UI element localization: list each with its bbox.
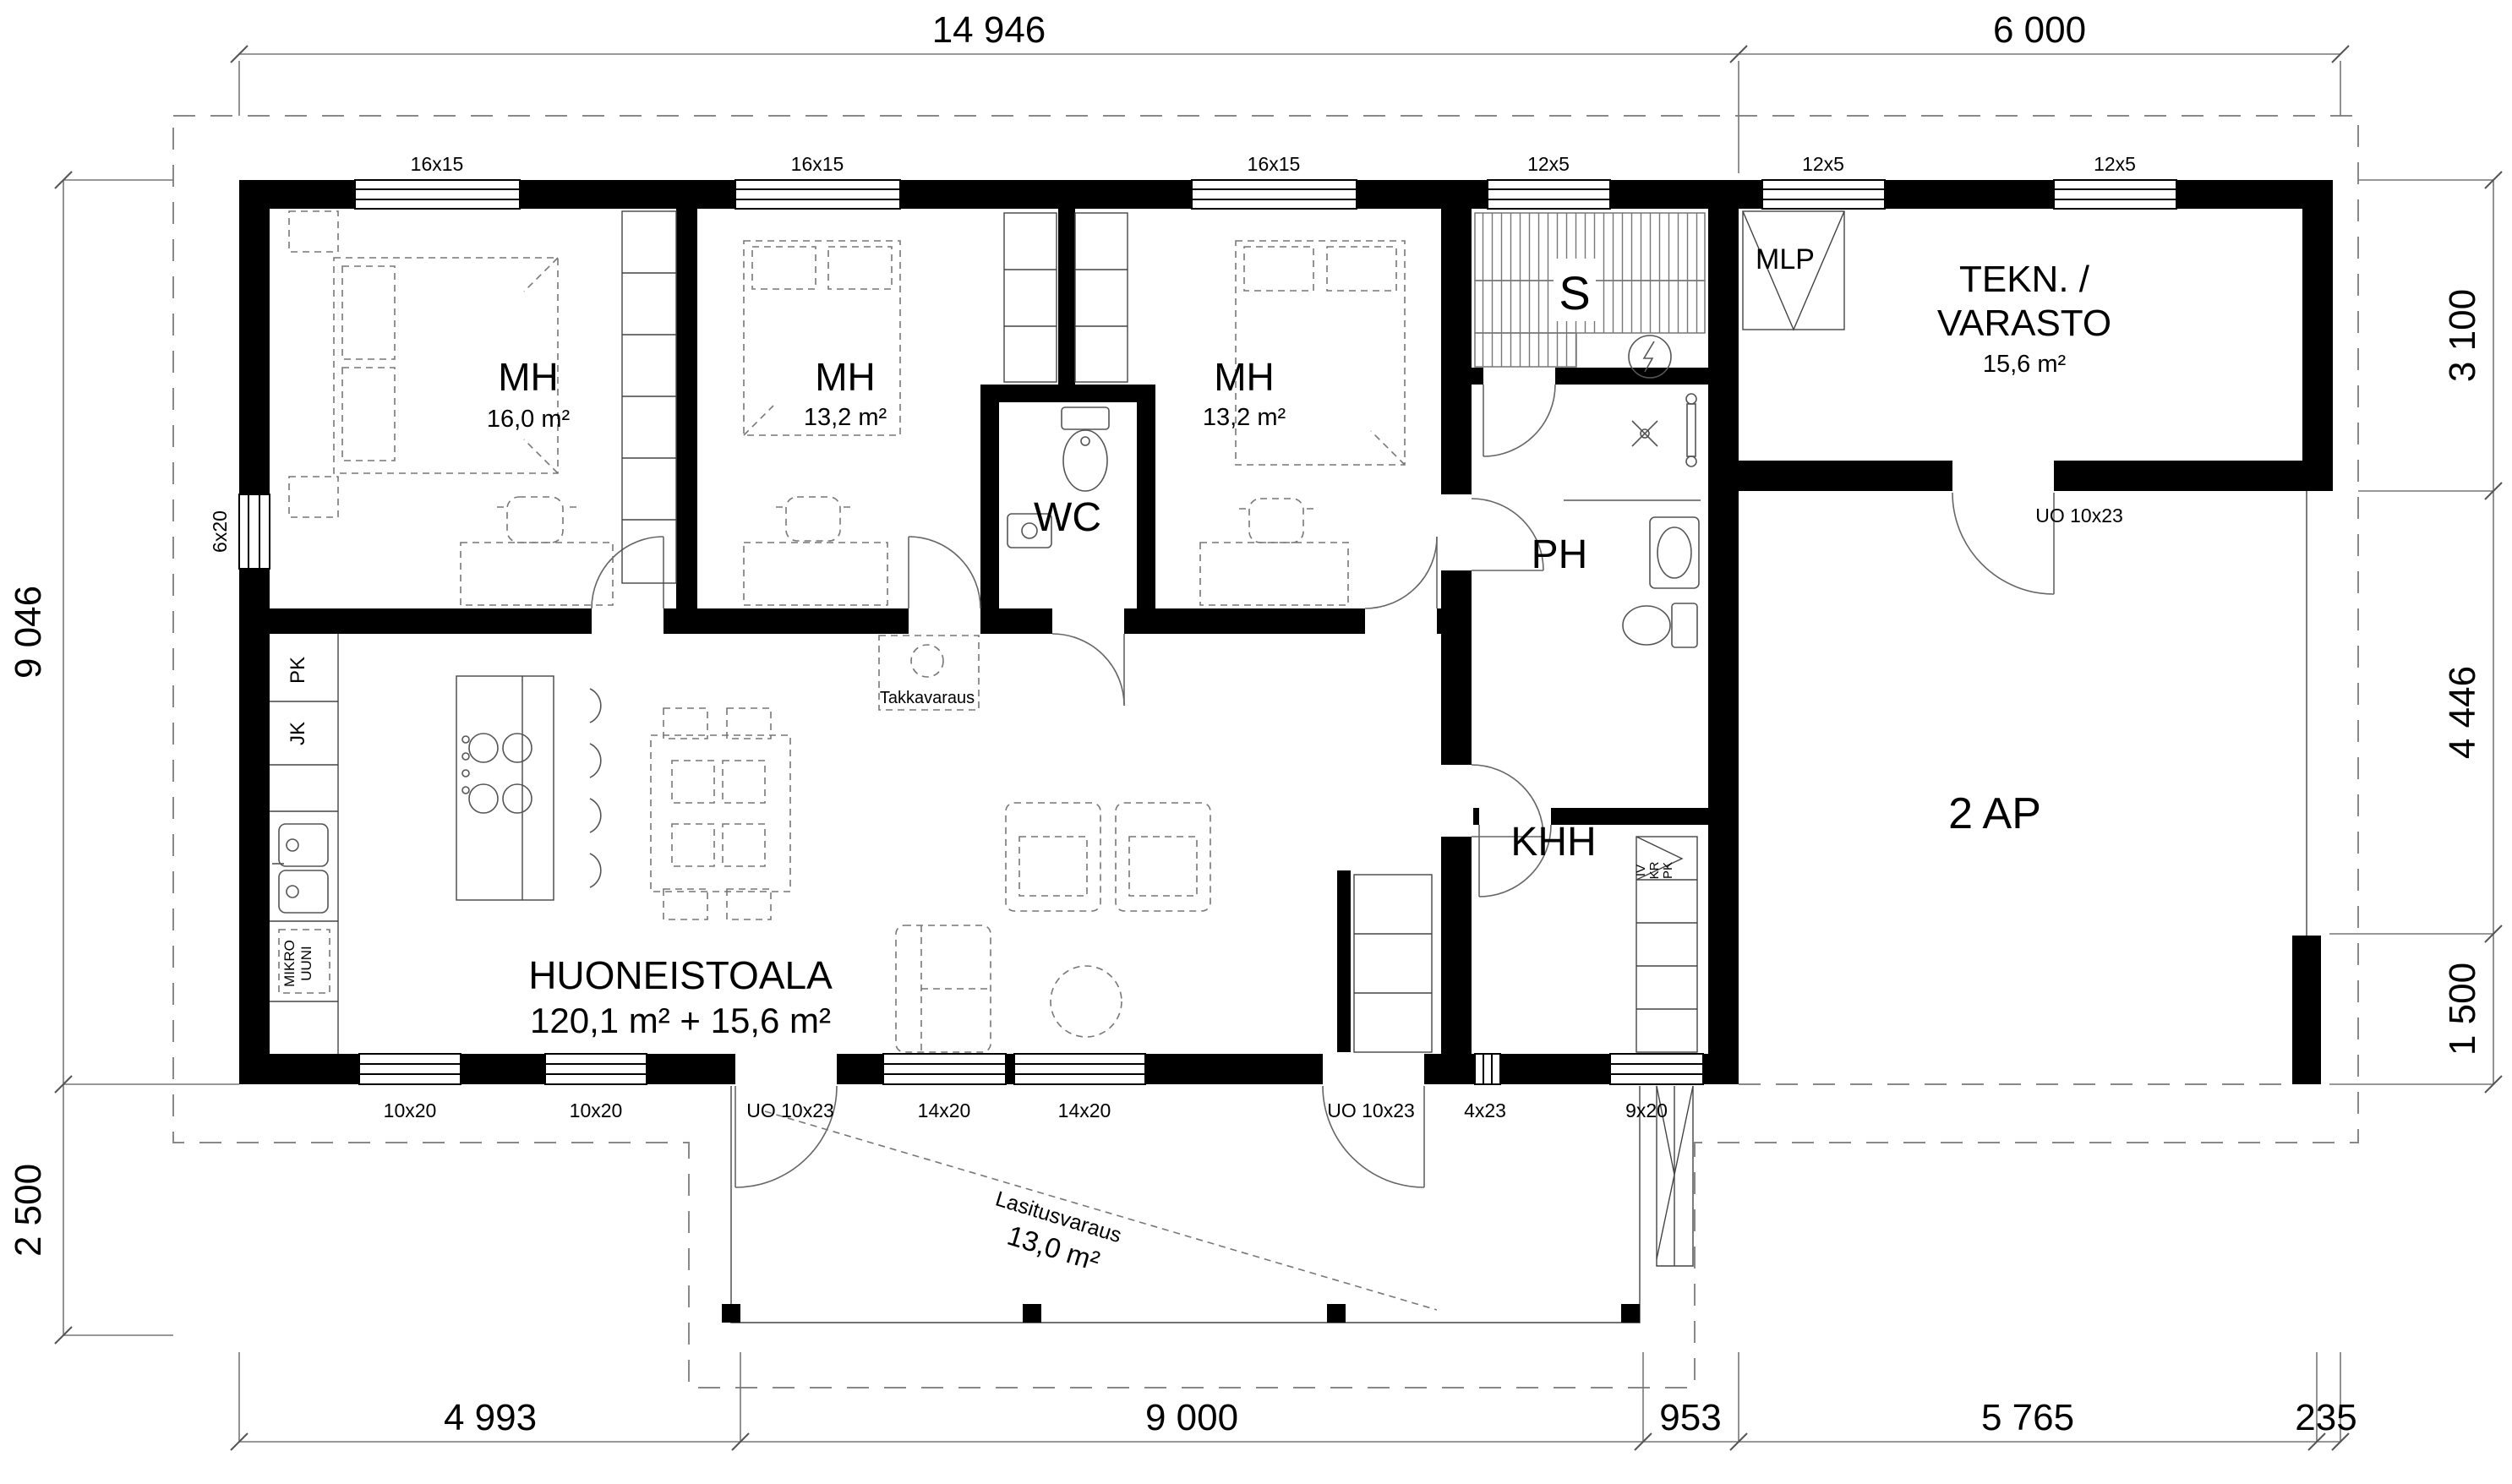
room-labels: MH 16,0 m² MH 13,2 m² MH 13,2 m² WC S PH…: [487, 243, 2111, 1280]
dim-top-1: 14 946: [932, 9, 1046, 51]
floor-plan-drawing: 14 946 6 000 9 046 2 500 3 100 4 446 1 5…: [0, 0, 2512, 1484]
armchair: [1006, 803, 1100, 911]
mh3-area: 13,2 m²: [1203, 404, 1286, 431]
dim-bottom-2: 9 000: [1145, 1397, 1238, 1438]
terrace: [722, 1086, 1693, 1323]
win-label: 16x15: [411, 153, 464, 175]
wc-label: WC: [1034, 495, 1101, 540]
dim-left-1: 9 046: [8, 586, 49, 679]
mh3-name: MH: [1214, 355, 1275, 399]
win-label: 16x15: [791, 153, 844, 175]
kitchen-island: [456, 676, 601, 900]
ph-sink-icon: [1650, 517, 1699, 588]
mh2-name: MH: [815, 355, 876, 399]
ph-fixtures: [1564, 394, 1701, 647]
dimension-lines: 14 946 6 000 9 046 2 500 3 100 4 446 1 5…: [8, 9, 2502, 1450]
door-label: UO 10x23: [2035, 505, 2123, 526]
win-label: 4x23: [1464, 1099, 1506, 1121]
desk-chair: [497, 497, 576, 543]
mh1-name: MH: [498, 355, 559, 399]
dim-top-2: 6 000: [1993, 9, 2086, 51]
dim-right-3: 1 500: [2442, 963, 2483, 1056]
desk-chair: [1239, 499, 1313, 543]
coffee-table: [1051, 966, 1122, 1037]
tekn-line2: VARASTO: [1937, 303, 2111, 344]
ph-label: PH: [1532, 532, 1588, 577]
shower-icon: [1632, 421, 1657, 446]
tekn-area: 15,6 m²: [1983, 351, 2067, 378]
huoneistoala-line2: 120,1 m² + 15,6 m²: [530, 1001, 831, 1040]
mh2-area: 13,2 m²: [804, 404, 887, 431]
win-label: 12x5: [2094, 153, 2136, 175]
dim-right-2: 4 446: [2442, 666, 2483, 759]
dining-table: [651, 708, 790, 919]
win-label: 9x20: [1625, 1099, 1668, 1121]
closet: [622, 211, 676, 583]
tv-shelf: [1354, 875, 1432, 1052]
kitchen-sink-icon: [272, 824, 328, 913]
window-labels: 16x15 16x15 16x15 12x5 12x5 12x5 6x20 10…: [209, 153, 2136, 1121]
kitchen-jk-label: JK: [287, 722, 309, 745]
kitchen-pk-label: PK: [287, 657, 309, 684]
mh1-area: 16,0 m²: [487, 406, 571, 433]
win-label: UO 10x23: [1327, 1099, 1415, 1121]
win-label: 12x5: [1527, 153, 1570, 175]
shower-mixer-icon: [1686, 394, 1696, 466]
closet: [1004, 213, 1057, 382]
khh-label: KHH: [1510, 820, 1596, 865]
carport-label: 2 AP: [1948, 789, 2041, 838]
win-label: 14x20: [1058, 1099, 1111, 1121]
armchair: [1116, 803, 1210, 911]
sofa: [896, 925, 991, 1052]
dim-bottom-4: 5 765: [1981, 1397, 2074, 1438]
dim-bottom-3: 953: [1659, 1397, 1721, 1438]
carport: [1739, 491, 2307, 1084]
wc-toilet-icon: [1062, 407, 1109, 491]
mlp-label: MLP: [1756, 243, 1815, 276]
floor-plan-page: 14 946 6 000 9 046 2 500 3 100 4 446 1 5…: [0, 0, 2512, 1484]
khh-closet-label-iv: IV: [1634, 865, 1648, 876]
win-label: 10x20: [384, 1099, 437, 1121]
win-label: UO 10x23: [746, 1099, 834, 1121]
tekn-line1: TEKN. /: [1959, 259, 2090, 300]
kitchen-uuni-label: UUNI: [298, 946, 314, 981]
desk-chair: [776, 497, 850, 541]
dim-left-2: 2 500: [8, 1164, 49, 1257]
sauna-label: S: [1559, 266, 1590, 319]
khh-closet-label-pk: PK: [1661, 862, 1675, 879]
fireplace-reservation: Takkavaraus: [879, 636, 979, 710]
takkavaraus-label: Takkavaraus: [880, 689, 975, 707]
kitchen-mikro-label: MIKRO: [281, 940, 298, 987]
win-label: 10x20: [570, 1099, 623, 1121]
khh-closet-label-kr: KR: [1647, 861, 1662, 879]
dim-right-1: 3 100: [2442, 289, 2483, 382]
win-label: 6x20: [209, 510, 231, 553]
mh1-furniture: [289, 211, 676, 605]
living-furniture: [896, 803, 1432, 1052]
dim-bottom-1: 4 993: [444, 1397, 537, 1438]
win-label: 16x15: [1248, 153, 1301, 175]
win-label: 12x5: [1802, 153, 1844, 175]
ph-toilet-icon: [1623, 603, 1697, 647]
huoneistoala-line1: HUONEISTOALA: [528, 953, 833, 997]
khh-cabinets: IV KR PK: [1634, 837, 1697, 1052]
dim-bottom-5: 235: [2295, 1397, 2356, 1438]
door-openings: [592, 366, 2054, 837]
closet: [1075, 213, 1128, 382]
win-label: 14x20: [918, 1099, 971, 1121]
